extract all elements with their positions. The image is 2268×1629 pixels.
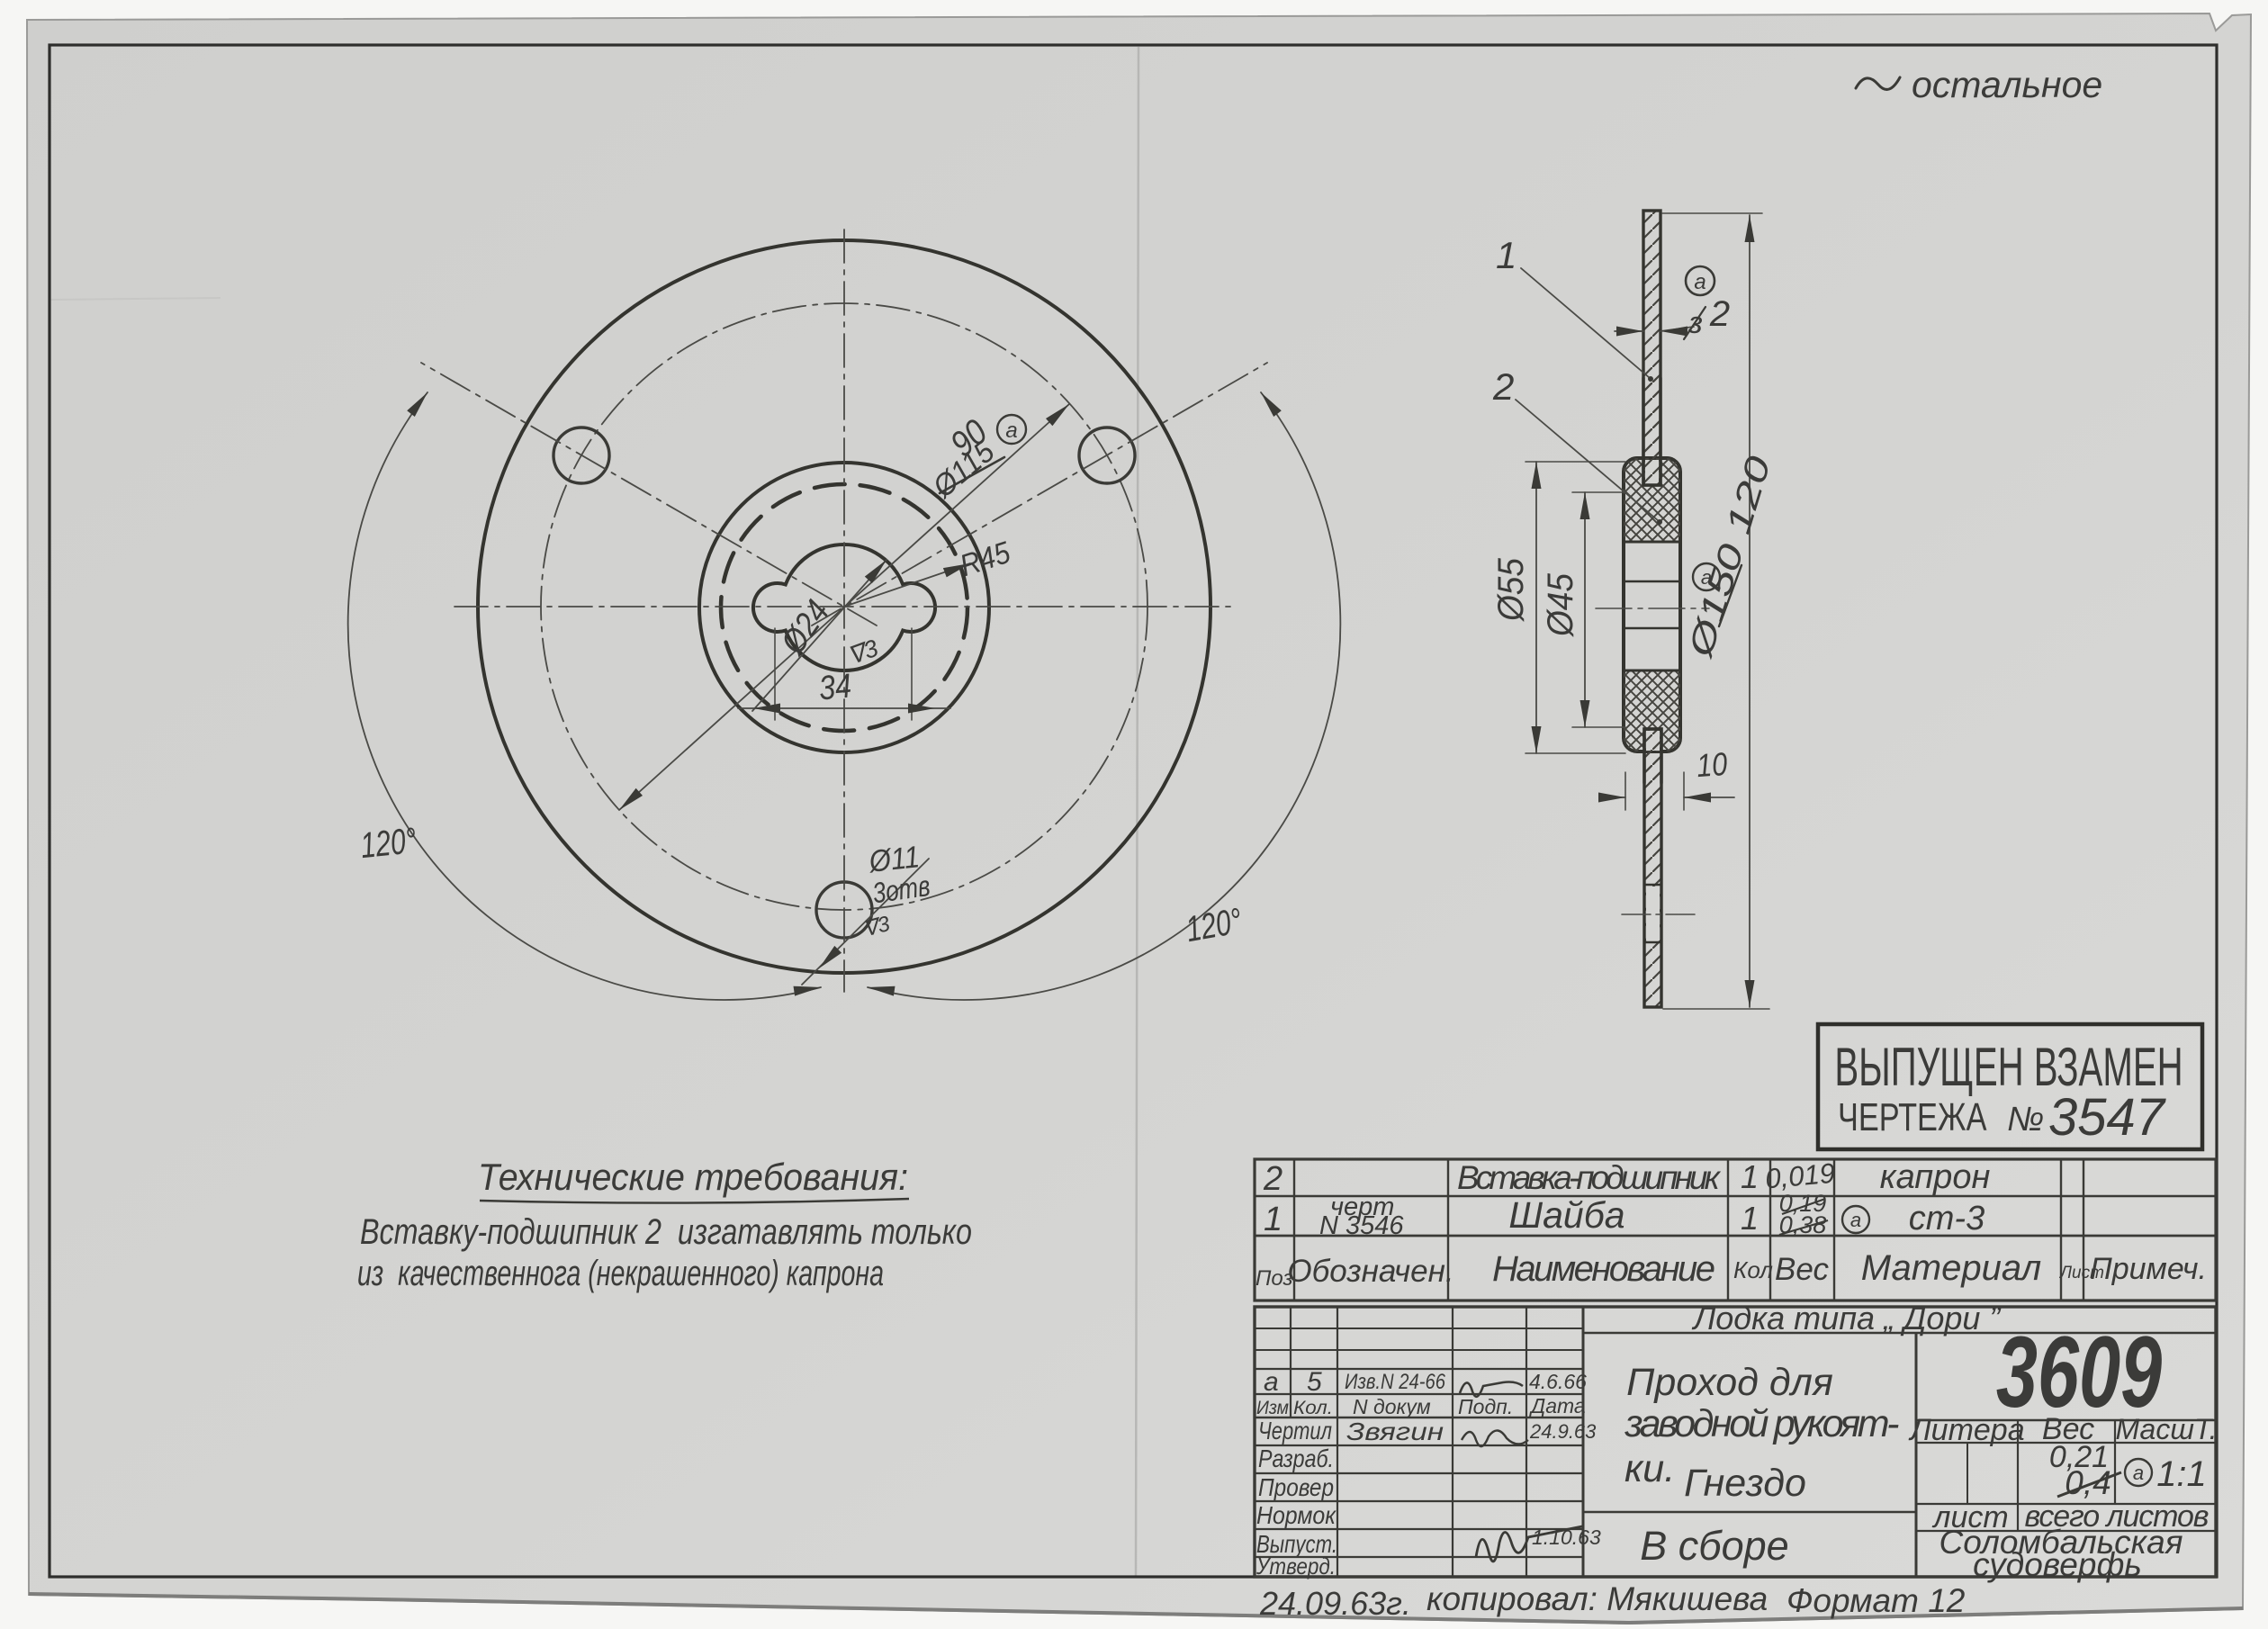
svg-text:1: 1 <box>1741 1200 1759 1237</box>
svg-text:Вставка-подшипник: Вставка-подшипник <box>1457 1159 1722 1196</box>
svg-text:N 3546: N 3546 <box>1319 1211 1404 1240</box>
svg-text:2: 2 <box>1492 365 1514 408</box>
svg-text:Обозначен.: Обозначен. <box>1287 1254 1453 1289</box>
svg-text:Ø55: Ø55 <box>1491 557 1531 623</box>
svg-text:из качественнога (некрашенног: из качественнога (некрашенного) капрона <box>357 1254 884 1293</box>
svg-text:судоверфь: судоверфь <box>1973 1546 2142 1583</box>
svg-text:Технические требования:: Технические требования: <box>478 1156 908 1198</box>
svg-text:Разраб.: Разраб. <box>1258 1444 1334 1472</box>
svg-text:№: № <box>2007 1101 2044 1138</box>
svg-text:капрон: капрон <box>1880 1158 1991 1196</box>
svg-text:Наименование: Наименование <box>1492 1249 1715 1289</box>
svg-text:заводной рукоят-: заводной рукоят- <box>1624 1402 1900 1445</box>
svg-text:ст-3: ст-3 <box>1909 1200 1984 1237</box>
svg-text:Материал: Материал <box>1861 1248 2041 1288</box>
svg-text:Вставку-подшипник 2 изгатавля: Вставку-подшипник 2 изгатавлять только <box>360 1212 972 1252</box>
svg-text:2: 2 <box>1263 1160 1282 1198</box>
svg-text:Литера: Литера <box>1908 1413 2024 1447</box>
svg-text:копировал: Мякишева: копировал: Мякишева <box>1426 1580 1768 1617</box>
svg-text:Изм: Изм <box>1256 1398 1289 1418</box>
svg-text:a: a <box>1694 270 1705 294</box>
svg-text:Примеч.: Примеч. <box>2090 1252 2207 1286</box>
svg-text:1: 1 <box>1741 1158 1759 1195</box>
svg-text:Формат 12: Формат 12 <box>1786 1582 1966 1619</box>
svg-text:34: 34 <box>817 668 853 708</box>
svg-text:Утверд.: Утверд. <box>1255 1552 1336 1579</box>
svg-text:Кол.: Кол. <box>1293 1398 1333 1418</box>
svg-text:ЧЕРТЕЖА: ЧЕРТЕЖА <box>1838 1095 1987 1139</box>
svg-text:N докум: N докум <box>1353 1395 1431 1418</box>
svg-text:ки.: ки. <box>1624 1447 1675 1490</box>
svg-text:24.09.63г.: 24.09.63г. <box>1259 1585 1411 1622</box>
svg-text:Изв.N 24-66: Изв.N 24-66 <box>1345 1370 1446 1394</box>
svg-text:остальное: остальное <box>1912 64 2102 105</box>
svg-text:а: а <box>1264 1367 1279 1397</box>
svg-text:Шайба: Шайба <box>1508 1194 1624 1236</box>
svg-text:0,4: 0,4 <box>2065 1464 2110 1501</box>
svg-text:1: 1 <box>1264 1201 1282 1238</box>
svg-text:Звягин: Звягин <box>1346 1417 1444 1445</box>
svg-text:Кол: Кол <box>1733 1256 1773 1283</box>
svg-text:Проход для: Проход для <box>1626 1361 1833 1404</box>
svg-text:1.10.63: 1.10.63 <box>1532 1525 1601 1549</box>
svg-text:0,38: 0,38 <box>1779 1211 1827 1238</box>
svg-text:Ø45: Ø45 <box>1541 572 1580 638</box>
svg-text:a: a <box>1850 1209 1861 1231</box>
svg-text:Вес: Вес <box>1775 1252 1829 1287</box>
svg-text:Дата: Дата <box>1528 1394 1586 1417</box>
svg-text:2: 2 <box>1709 294 1730 334</box>
svg-text:Нормок: Нормок <box>1256 1501 1337 1529</box>
svg-text:Подп.: Подп. <box>1458 1395 1513 1418</box>
svg-text:Чертил: Чертил <box>1258 1417 1332 1444</box>
svg-text:В сборе: В сборе <box>1640 1523 1788 1569</box>
svg-text:1: 1 <box>1496 234 1516 276</box>
svg-text:1:1: 1:1 <box>2156 1454 2207 1494</box>
svg-text:МасшТ.: МасшТ. <box>2116 1413 2218 1445</box>
svg-text:4.6.66: 4.6.66 <box>1529 1370 1587 1393</box>
svg-text:a: a <box>2133 1462 2144 1484</box>
svg-text:120°: 120° <box>359 821 418 866</box>
svg-text:10: 10 <box>1696 745 1729 784</box>
svg-text:Провер: Провер <box>1258 1473 1334 1501</box>
svg-text:5: 5 <box>1307 1367 1322 1397</box>
svg-text:Гнездо: Гнездо <box>1684 1462 1806 1505</box>
svg-text:24.9.63: 24.9.63 <box>1529 1420 1597 1443</box>
svg-text:3547: 3547 <box>2048 1088 2167 1147</box>
svg-text:Лодка типа „ Дори ”: Лодка типа „ Дори ” <box>1692 1300 2002 1336</box>
svg-text:a: a <box>1005 418 1017 443</box>
